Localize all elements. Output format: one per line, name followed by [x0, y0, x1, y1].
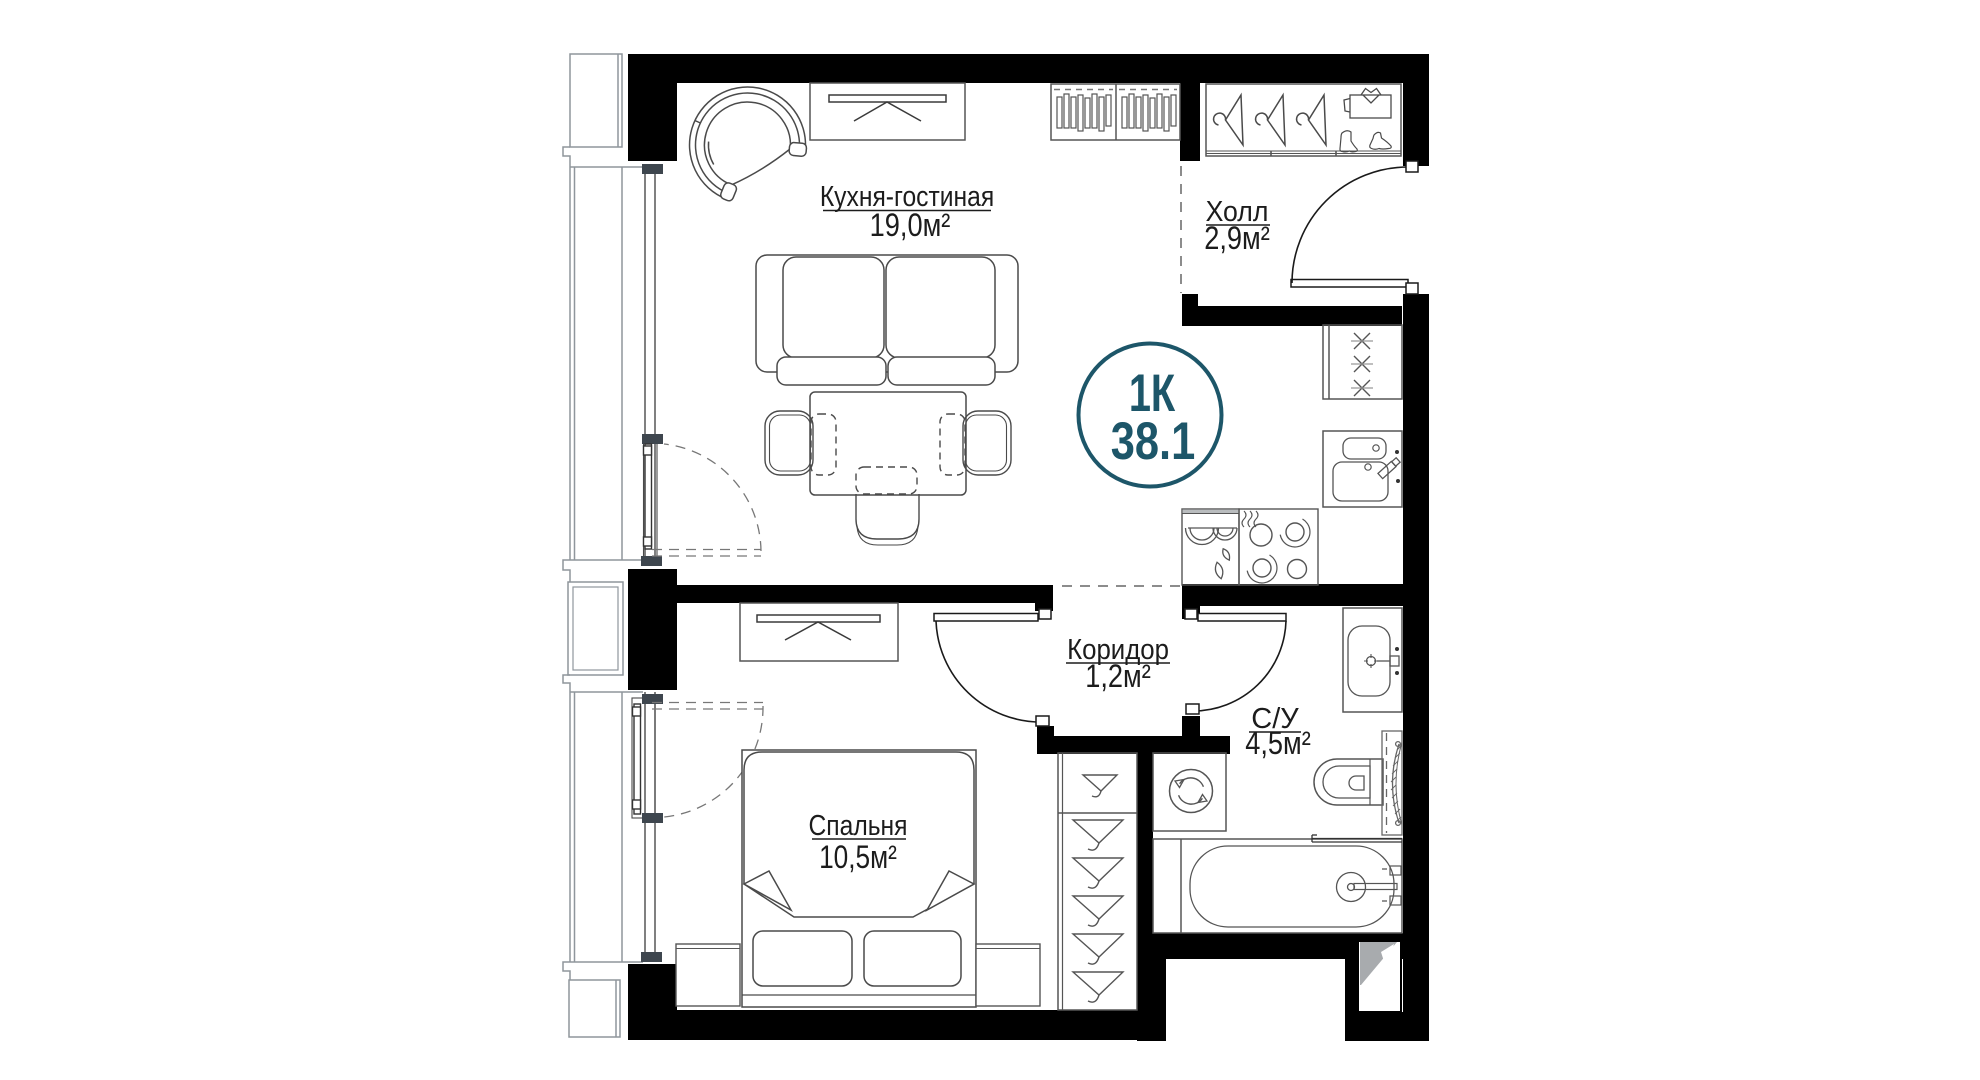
- svg-text:19,0м²: 19,0м²: [870, 208, 951, 244]
- svg-text:2,9м²: 2,9м²: [1204, 221, 1270, 257]
- svg-text:1,2м²: 1,2м²: [1085, 659, 1151, 695]
- svg-text:Спальня: Спальня: [808, 809, 907, 841]
- svg-text:4,5м²: 4,5м²: [1245, 726, 1311, 762]
- svg-text:10,5м²: 10,5м²: [819, 841, 897, 876]
- svg-text:38.1: 38.1: [1111, 412, 1196, 471]
